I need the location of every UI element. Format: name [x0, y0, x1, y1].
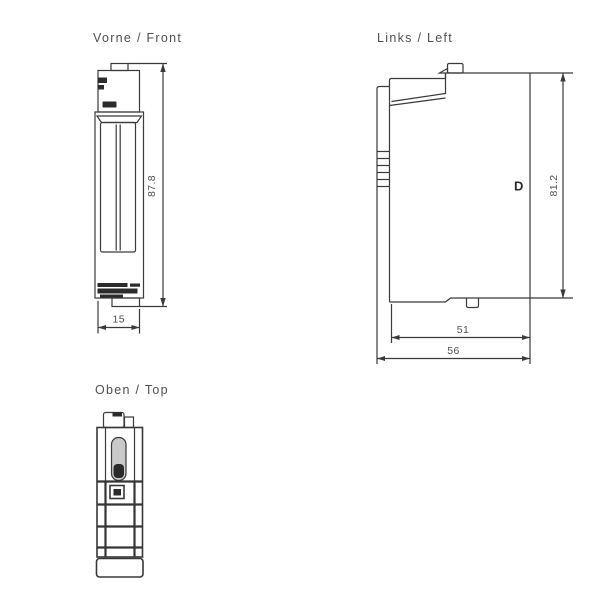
product-label-smudge — [130, 284, 140, 287]
front-top-tab — [111, 64, 128, 71]
front-body — [95, 112, 144, 298]
arrowhead-left — [98, 325, 106, 330]
arrowhead-right — [522, 335, 530, 340]
arrowhead-down — [160, 298, 165, 307]
front-door — [101, 123, 136, 253]
arrowhead-left — [392, 335, 400, 340]
product-label-smudge — [98, 289, 138, 294]
left-depth-inner-dimension: 51 — [392, 298, 531, 364]
top-square-dark-center — [114, 489, 122, 496]
left-height-dimension-label: 81.2 — [548, 174, 560, 196]
arrowhead-right — [132, 325, 140, 330]
front-width-dimension: 15 — [98, 301, 140, 334]
arrowhead-right — [522, 356, 530, 361]
front-width-dimension-label: 15 — [112, 314, 124, 326]
product-label-smudge — [100, 295, 123, 298]
front-view: Vorne / Front 87.8 — [93, 31, 182, 334]
status-led-mark — [98, 78, 107, 84]
left-hook-underside — [392, 73, 446, 102]
left-hook-underside-2 — [390, 98, 446, 106]
front-door-bezel — [97, 116, 142, 123]
left-view: Links / Left D — [377, 31, 573, 364]
front-height-dimension-label: 87.8 — [146, 175, 158, 197]
left-height-dimension: 81.2 — [548, 73, 566, 298]
left-depth-total-dimension: 56 — [377, 302, 530, 364]
status-led-mark-small — [98, 85, 104, 90]
top-bump-dark-tick — [113, 413, 123, 417]
arrowhead-up — [560, 73, 565, 82]
technical-drawing: Vorne / Front 87.8 — [0, 0, 600, 600]
top-view: Oben / Top — [95, 383, 169, 577]
front-bottom-foot — [112, 298, 140, 307]
arrowhead-down — [560, 290, 565, 299]
left-depth-inner-dimension-label: 51 — [457, 324, 469, 336]
left-bottom-edge — [390, 298, 574, 302]
top-bottom-cap — [97, 559, 144, 578]
bus-connector-ribs — [377, 152, 390, 187]
left-outer-wall — [377, 87, 390, 303]
din-rail-clip — [467, 298, 479, 308]
arrowhead-up — [160, 64, 165, 73]
left-view-title: Links / Left — [377, 31, 453, 45]
front-height-dimension: 87.8 — [146, 64, 166, 307]
left-tab-wedge — [440, 69, 448, 74]
top-bump-small — [125, 417, 134, 428]
arrowhead-left — [377, 356, 385, 361]
d-shaped-hole-mark: D — [514, 179, 523, 194]
led-row-mark — [103, 102, 117, 108]
top-view-title: Oben / Top — [95, 383, 169, 397]
top-slot-dark-insert — [114, 464, 125, 478]
dimensional-drawing-page: Vorne / Front 87.8 — [0, 0, 600, 600]
left-top-tab — [448, 64, 464, 74]
left-depth-total-dimension-label: 56 — [447, 345, 459, 357]
product-label-smudge — [98, 283, 128, 287]
front-view-title: Vorne / Front — [93, 31, 182, 45]
